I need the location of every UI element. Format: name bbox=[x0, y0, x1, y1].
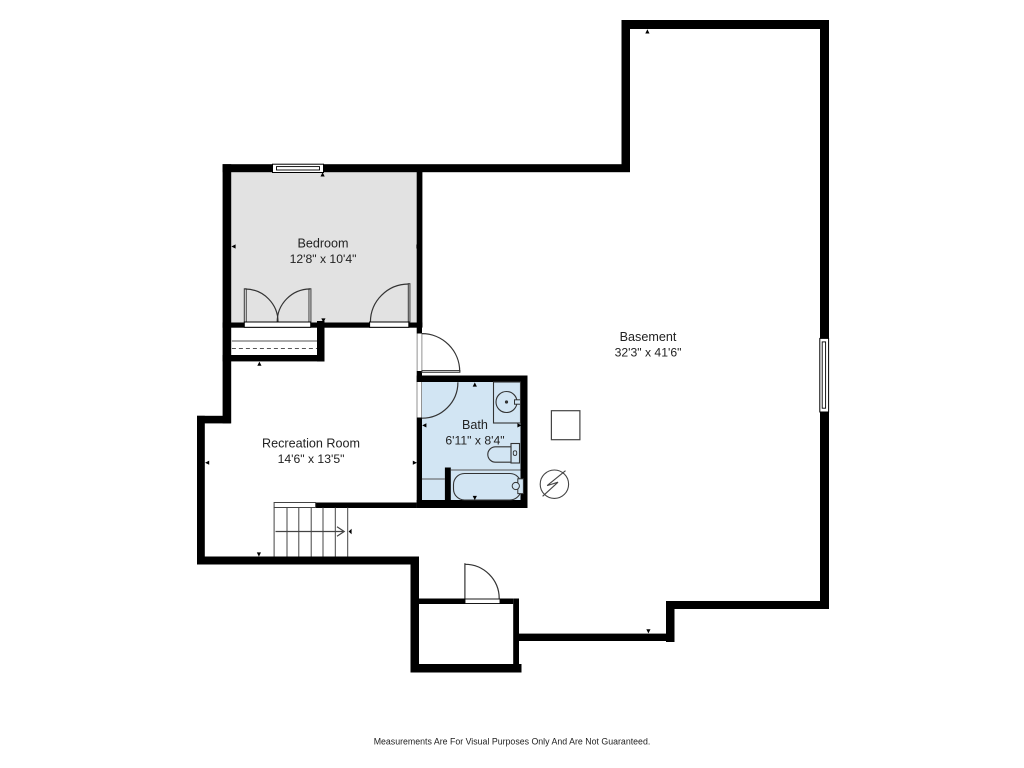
svg-text:Basement: Basement bbox=[620, 330, 677, 344]
svg-text:32'3" x 41'6": 32'3" x 41'6" bbox=[615, 346, 682, 360]
svg-text:6'11" x 8'4": 6'11" x 8'4" bbox=[445, 434, 504, 448]
svg-text:Bath: Bath bbox=[462, 418, 488, 432]
svg-text:Measurements Are For Visual Pu: Measurements Are For Visual Purposes Onl… bbox=[374, 737, 651, 747]
svg-text:Recreation Room: Recreation Room bbox=[262, 437, 360, 451]
svg-text:14'6" x 13'5": 14'6" x 13'5" bbox=[278, 452, 345, 466]
svg-text:Bedroom: Bedroom bbox=[297, 237, 348, 251]
svg-text:12'8" x 10'4": 12'8" x 10'4" bbox=[290, 252, 357, 266]
